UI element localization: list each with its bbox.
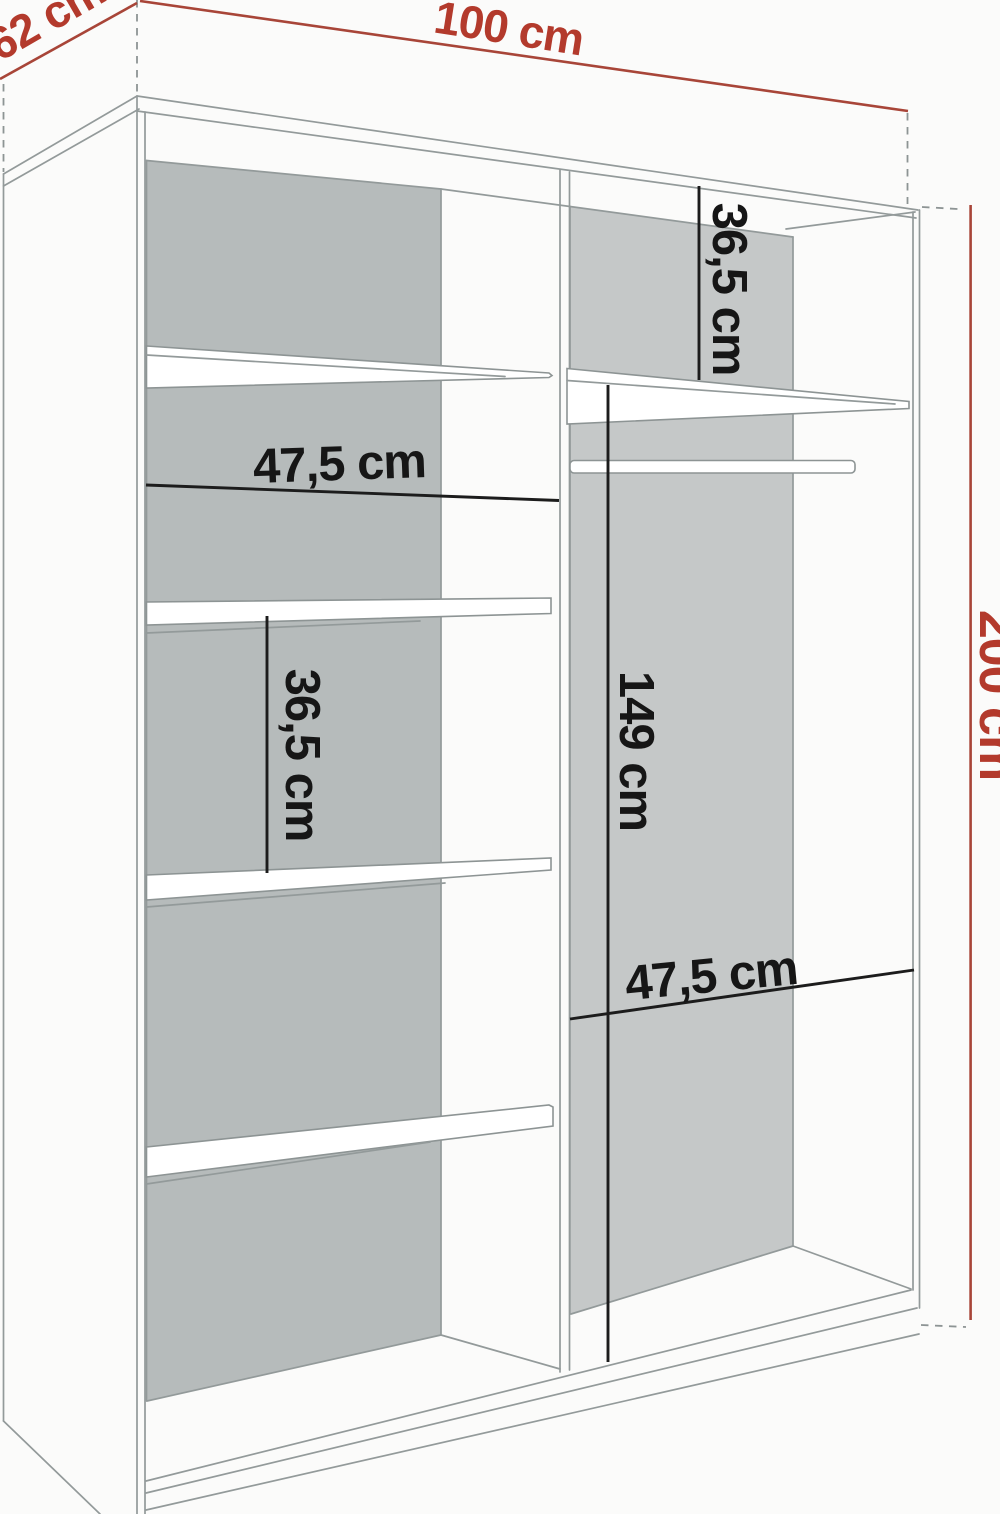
svg-text:47,5 cm: 47,5 cm	[252, 434, 427, 494]
svg-text:36,5 cm: 36,5 cm	[275, 669, 329, 842]
svg-text:200 cm: 200 cm	[968, 610, 1000, 780]
svg-text:149 cm: 149 cm	[609, 671, 663, 831]
svg-text:36,5 cm: 36,5 cm	[702, 203, 756, 376]
